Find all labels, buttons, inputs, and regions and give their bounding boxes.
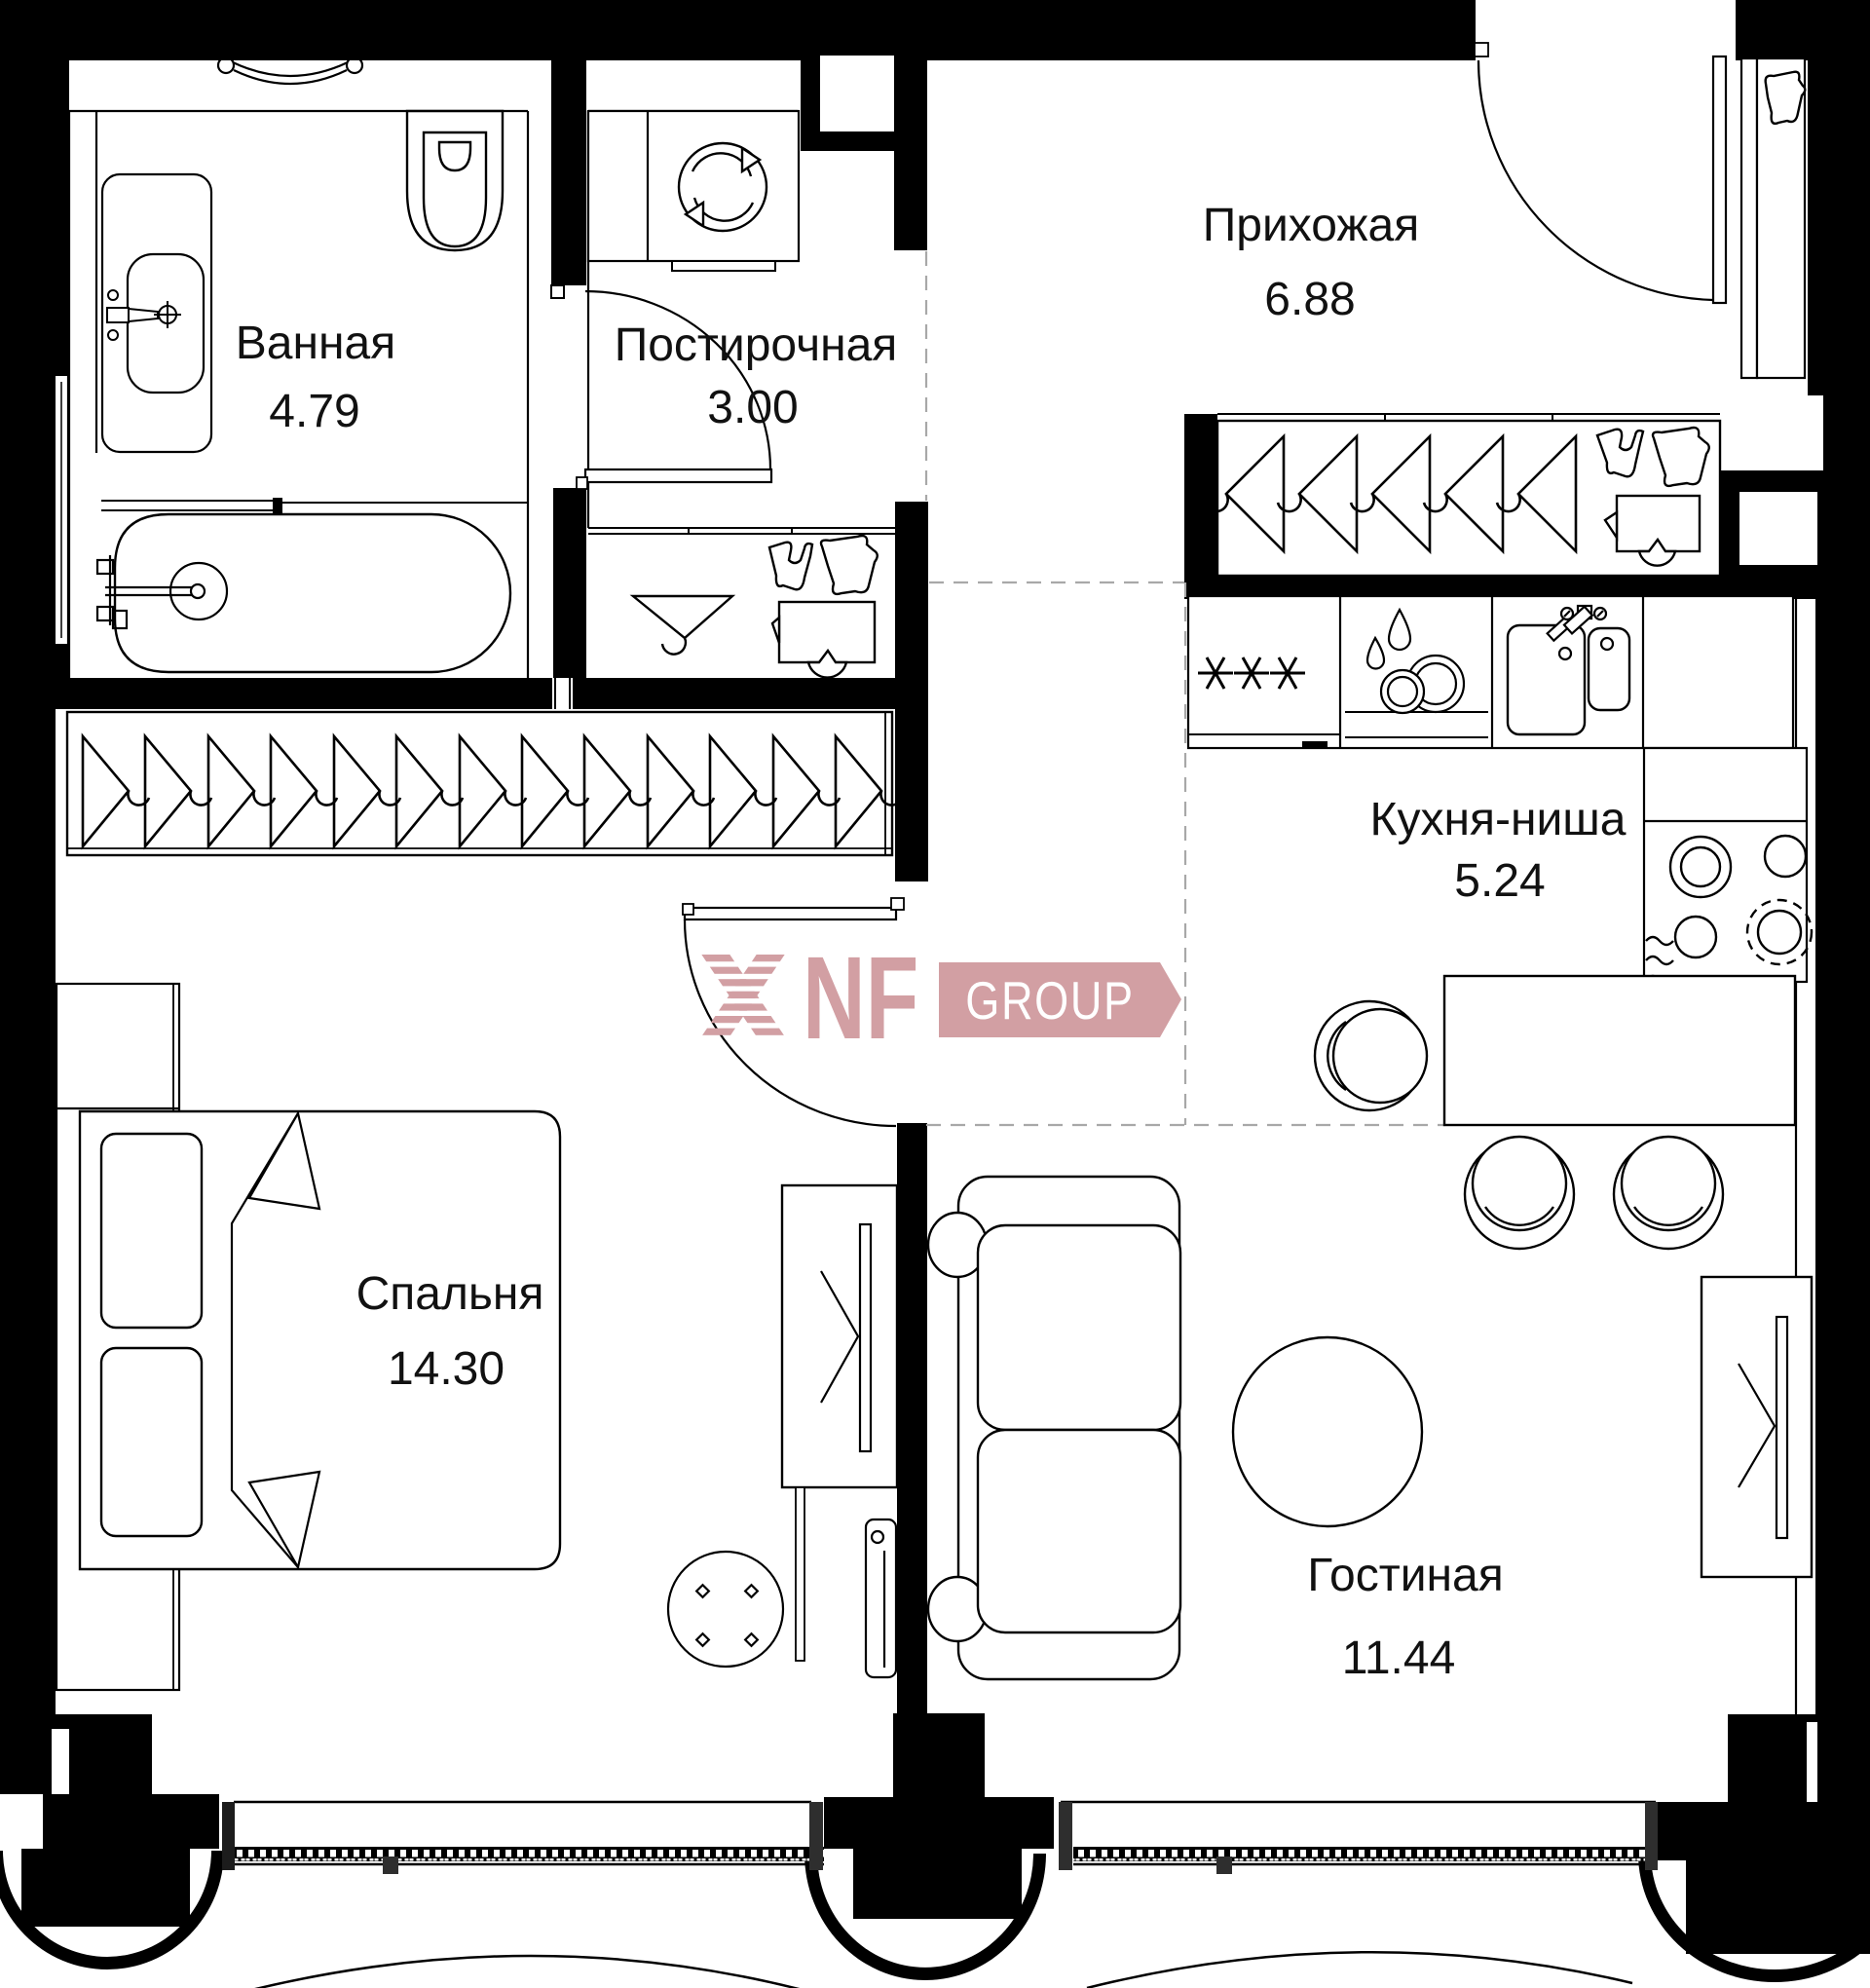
svg-text:6.88: 6.88 [1264, 274, 1355, 325]
svg-text:Гостиная: Гостиная [1307, 1550, 1503, 1601]
svg-text:11.44: 11.44 [1342, 1632, 1456, 1684]
svg-text:5.24: 5.24 [1454, 855, 1545, 907]
svg-text:Прихожая: Прихожая [1203, 200, 1419, 251]
svg-text:Постирочная: Постирочная [615, 319, 898, 371]
svg-text:Ванная: Ванная [236, 318, 395, 369]
svg-text:4.79: 4.79 [269, 386, 359, 437]
svg-text:Спальня: Спальня [356, 1268, 544, 1320]
svg-text:14.30: 14.30 [388, 1343, 505, 1395]
svg-text:NF: NF [803, 932, 918, 1064]
svg-text:3.00: 3.00 [707, 382, 798, 433]
svg-text:GROUP: GROUP [965, 970, 1135, 1031]
svg-text:Кухня-ниша: Кухня-ниша [1370, 794, 1627, 845]
